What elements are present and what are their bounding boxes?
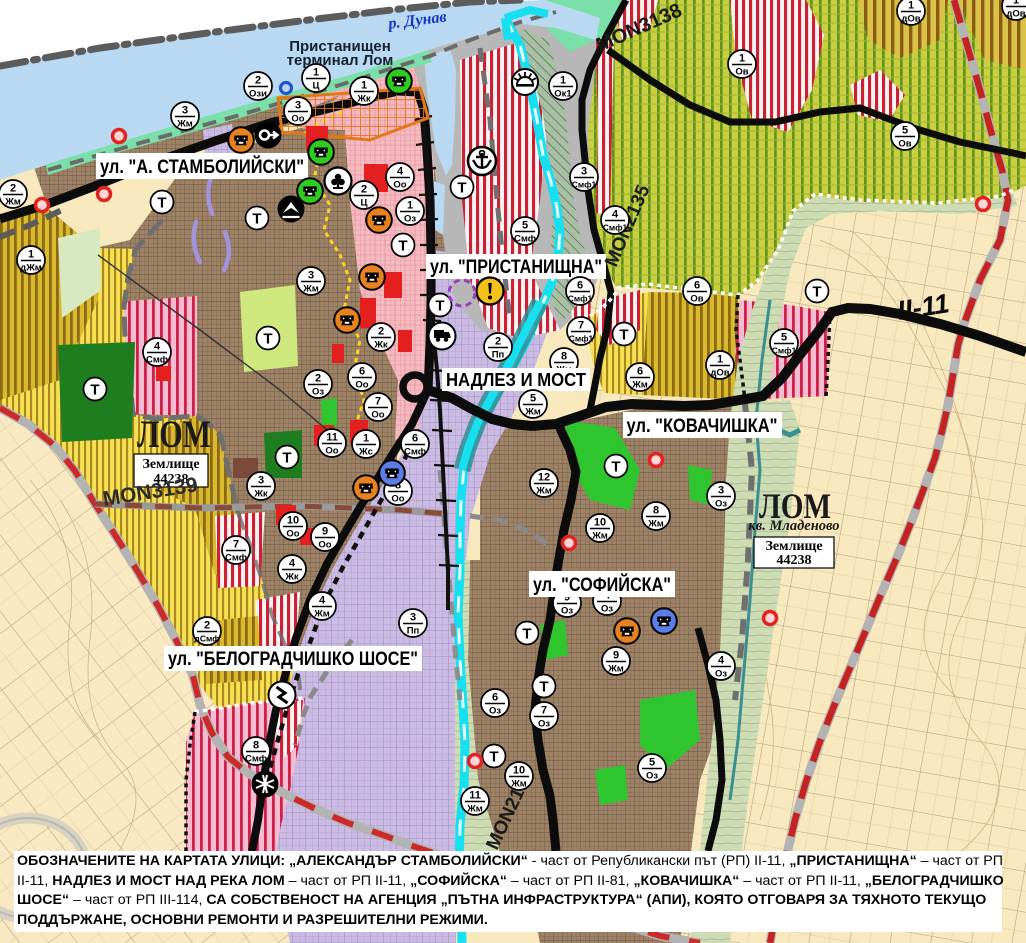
- svg-text:Т: Т: [457, 180, 466, 197]
- svg-text:7: 7: [375, 396, 381, 408]
- svg-text:Оз: Оз: [538, 719, 550, 730]
- svg-text:Оо: Оо: [391, 494, 404, 505]
- svg-text:9: 9: [613, 650, 619, 662]
- svg-text:дСмф: дСмф: [194, 634, 220, 644]
- svg-text:Жм: Жм: [647, 519, 664, 530]
- svg-text:8: 8: [253, 740, 259, 752]
- svg-text:Жм: Жм: [176, 119, 193, 130]
- svg-text:10: 10: [594, 517, 606, 529]
- svg-text:1: 1: [717, 354, 723, 366]
- svg-text:Т: Т: [263, 331, 272, 348]
- svg-text:Жк: Жк: [253, 489, 268, 500]
- svg-text:6: 6: [492, 692, 498, 704]
- svg-text:Ц: Ц: [313, 81, 320, 92]
- svg-text:Смф1: Смф1: [568, 294, 593, 304]
- svg-text:1: 1: [361, 80, 367, 92]
- svg-text:10: 10: [513, 765, 525, 777]
- svg-text:4: 4: [154, 341, 161, 353]
- svg-text:Т: Т: [157, 195, 166, 212]
- svg-text:1: 1: [28, 249, 34, 261]
- svg-text:Смф: Смф: [245, 754, 267, 765]
- svg-text:Смф: Смф: [514, 234, 536, 245]
- svg-text:Жм: Жм: [302, 284, 319, 295]
- svg-text:3: 3: [581, 166, 587, 178]
- svg-text:Жм: Жм: [313, 609, 330, 620]
- svg-text:2: 2: [361, 184, 367, 196]
- svg-text:Жс: Жс: [358, 447, 373, 458]
- svg-text:7: 7: [578, 320, 584, 332]
- svg-text:5: 5: [649, 757, 655, 769]
- svg-text:Т: Т: [90, 382, 99, 399]
- svg-text:Землище: Землище: [142, 457, 199, 472]
- svg-text:кв. Младеново: кв. Младеново: [748, 518, 839, 534]
- svg-text:Смф: Смф: [404, 447, 426, 458]
- svg-text:Оо: Оо: [371, 410, 384, 421]
- svg-text:2: 2: [315, 373, 321, 385]
- svg-text:Ц: Ц: [361, 198, 368, 209]
- svg-text:Т: Т: [435, 298, 444, 315]
- svg-text:Землище: Землище: [765, 539, 822, 554]
- svg-text:1: 1: [739, 53, 745, 65]
- svg-text:5: 5: [530, 393, 536, 405]
- svg-text:Оз: Оз: [715, 499, 727, 510]
- svg-text:ул. "БЕЛОГРАДЧИШКО ШОСЕ": ул. "БЕЛОГРАДЧИШКО ШОСЕ": [168, 649, 418, 670]
- svg-text:Ов: Ов: [735, 67, 748, 78]
- svg-text:3: 3: [308, 270, 314, 282]
- svg-text:Т: Т: [252, 211, 261, 228]
- svg-text:6: 6: [359, 366, 365, 378]
- svg-text:дЖм: дЖм: [20, 263, 42, 274]
- svg-text:Жк: Жк: [373, 340, 388, 351]
- svg-text:7: 7: [541, 705, 547, 717]
- svg-text:7: 7: [233, 539, 239, 551]
- svg-text:Оз: Оз: [715, 669, 727, 680]
- svg-text:1: 1: [407, 200, 413, 212]
- svg-text:Жм: Жм: [631, 380, 648, 391]
- svg-text:3: 3: [410, 612, 416, 624]
- svg-text:2: 2: [378, 326, 384, 338]
- svg-text:Оз: Оз: [601, 604, 613, 615]
- svg-text:терминал Лом: терминал Лом: [287, 52, 394, 69]
- svg-text:Смф1: Смф1: [772, 346, 797, 356]
- svg-text:НАДЛЕЗ И МОСТ: НАДЛЕЗ И МОСТ: [446, 369, 587, 390]
- svg-text:1: 1: [313, 67, 319, 79]
- svg-text:ул. "КОВАЧИШКА": ул. "КОВАЧИШКА": [627, 415, 778, 437]
- svg-text:3: 3: [258, 475, 264, 487]
- svg-text:Пп: Пп: [407, 626, 420, 637]
- svg-text:ул. "А. СТАМБОЛИЙСКИ": ул. "А. СТАМБОЛИЙСКИ": [100, 154, 304, 178]
- svg-text:Жм: Жм: [4, 197, 21, 208]
- svg-text:Оо: Оо: [291, 114, 304, 125]
- svg-text:Смф: Смф: [225, 553, 247, 564]
- svg-text:Жк: Жк: [356, 94, 371, 105]
- svg-text:12: 12: [538, 472, 550, 484]
- svg-text:6: 6: [637, 366, 643, 378]
- svg-text:5: 5: [522, 220, 528, 232]
- svg-text:Т: Т: [489, 749, 498, 766]
- svg-text:44238: 44238: [777, 553, 812, 568]
- svg-text:5: 5: [781, 332, 787, 344]
- svg-text:Жм: Жм: [591, 531, 608, 542]
- svg-text:Смф1: Смф1: [569, 334, 594, 344]
- svg-text:8: 8: [561, 351, 567, 363]
- svg-text:Ок1: Ок1: [554, 89, 572, 100]
- svg-text:4: 4: [718, 655, 725, 667]
- svg-text:Оз: Оз: [312, 387, 324, 398]
- svg-text:ЛОМ: ЛОМ: [137, 413, 211, 456]
- svg-text:Оо: Оо: [355, 380, 368, 391]
- svg-text:2: 2: [204, 620, 210, 632]
- svg-text:Жм: Жм: [524, 407, 541, 418]
- svg-text:Ози: Ози: [249, 89, 267, 100]
- svg-text:3: 3: [718, 485, 724, 497]
- svg-text:6: 6: [694, 280, 700, 292]
- svg-text:Оз: Оз: [646, 771, 658, 782]
- svg-text:ул. "СОФИЙСКА": ул. "СОФИЙСКА": [533, 572, 671, 596]
- svg-text:Жк: Жк: [284, 572, 299, 583]
- svg-text:9: 9: [322, 526, 328, 538]
- svg-text:Т: Т: [522, 626, 531, 643]
- svg-text:Пп: Пп: [492, 350, 505, 361]
- svg-text:5: 5: [902, 125, 908, 137]
- svg-text:8: 8: [653, 505, 659, 517]
- svg-text:дОв: дОв: [901, 14, 920, 25]
- svg-text:Оо: Оо: [286, 529, 299, 540]
- svg-text:1: 1: [560, 75, 566, 87]
- svg-text:Смф: Смф: [146, 355, 168, 366]
- svg-text:Смф1: Смф1: [572, 180, 597, 190]
- svg-text:Оз: Оз: [489, 706, 501, 717]
- svg-text:Оз: Оз: [561, 606, 573, 617]
- svg-text:Т: Т: [619, 327, 628, 344]
- svg-text:Т: Т: [398, 238, 407, 255]
- svg-text:Оз: Оз: [404, 214, 416, 225]
- svg-text:дОв: дОв: [1006, 9, 1025, 20]
- svg-text:4: 4: [289, 558, 296, 570]
- svg-text:4: 4: [397, 166, 404, 178]
- svg-text:Жм: Жм: [607, 664, 624, 675]
- svg-text:Оо: Оо: [325, 446, 338, 457]
- svg-text:дОв: дОв: [710, 368, 729, 379]
- svg-text:ул. "ПРИСТАНИЩНА": ул. "ПРИСТАНИЩНА": [430, 256, 602, 278]
- svg-text:11: 11: [326, 432, 338, 444]
- svg-text:Т: Т: [282, 450, 291, 467]
- svg-text:10: 10: [287, 515, 299, 527]
- svg-text:3: 3: [295, 100, 301, 112]
- svg-text:2: 2: [495, 336, 501, 348]
- svg-text:Ов: Ов: [690, 294, 703, 305]
- svg-text:Т: Т: [539, 679, 548, 696]
- svg-text:Оо: Оо: [393, 180, 406, 191]
- svg-text:3: 3: [182, 105, 188, 117]
- svg-text:4: 4: [319, 595, 326, 607]
- svg-text:1: 1: [1013, 0, 1019, 7]
- svg-text:6: 6: [412, 433, 418, 445]
- svg-text:Смф1: Смф1: [603, 223, 628, 233]
- svg-text:6: 6: [577, 280, 583, 292]
- svg-text:Жм: Жм: [466, 804, 483, 815]
- svg-text:Жм: Жм: [535, 486, 552, 497]
- svg-text:Ов: Ов: [898, 139, 911, 150]
- svg-text:4: 4: [612, 209, 619, 221]
- svg-text:Т: Т: [611, 459, 620, 476]
- svg-text:2: 2: [10, 183, 16, 195]
- svg-text:Жм: Жм: [510, 779, 527, 790]
- svg-text:1: 1: [908, 0, 914, 12]
- svg-text:11: 11: [469, 790, 481, 802]
- svg-text:2: 2: [255, 75, 261, 87]
- svg-text:1: 1: [363, 433, 369, 445]
- svg-text:Т: Т: [812, 284, 821, 301]
- svg-text:Оо: Оо: [318, 540, 331, 551]
